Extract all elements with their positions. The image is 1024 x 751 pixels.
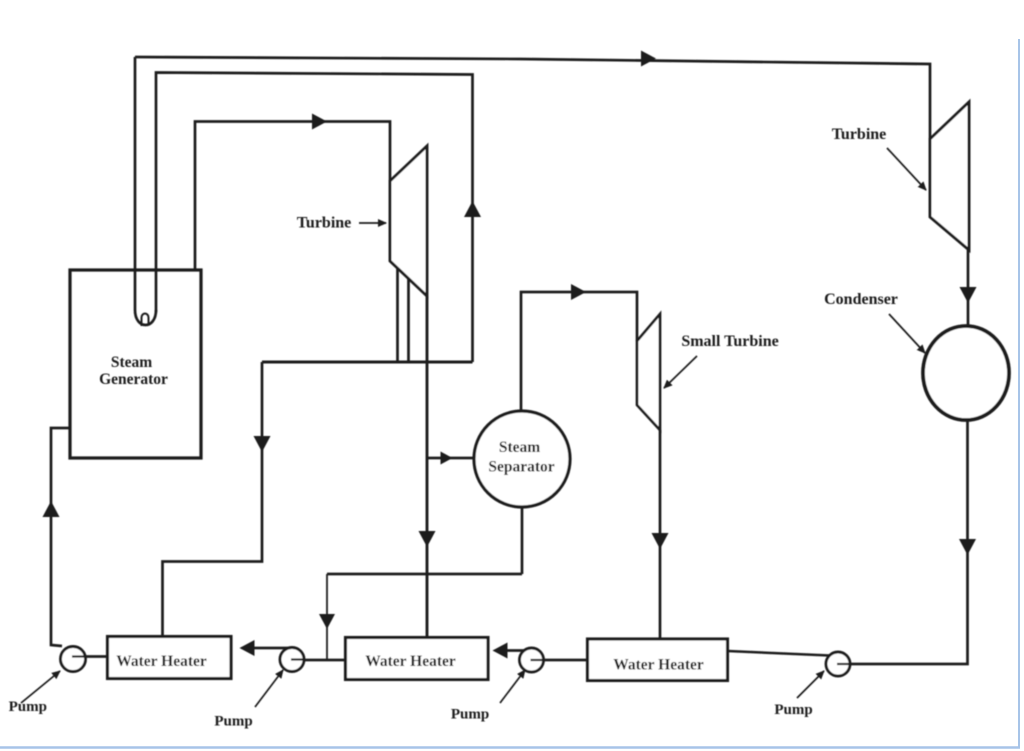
svg-text:Pump: Pump — [451, 707, 489, 723]
svg-text:Turbine: Turbine — [832, 126, 887, 143]
svg-text:Small Turbine: Small Turbine — [681, 333, 778, 350]
svg-text:Pump: Pump — [214, 714, 252, 730]
svg-text:Turbine: Turbine — [297, 215, 352, 232]
svg-text:Water Heater: Water Heater — [613, 657, 704, 674]
svg-text:Water Heater: Water Heater — [365, 653, 456, 670]
svg-text:Condenser: Condenser — [824, 291, 898, 308]
svg-text:Separator: Separator — [488, 459, 554, 476]
svg-text:Water Heater: Water Heater — [116, 653, 207, 670]
svg-text:Pump: Pump — [774, 702, 812, 718]
svg-text:Generator: Generator — [99, 371, 168, 388]
svg-text:Steam: Steam — [499, 439, 540, 456]
svg-text:Pump: Pump — [9, 699, 47, 715]
svg-text:Steam: Steam — [111, 354, 152, 371]
